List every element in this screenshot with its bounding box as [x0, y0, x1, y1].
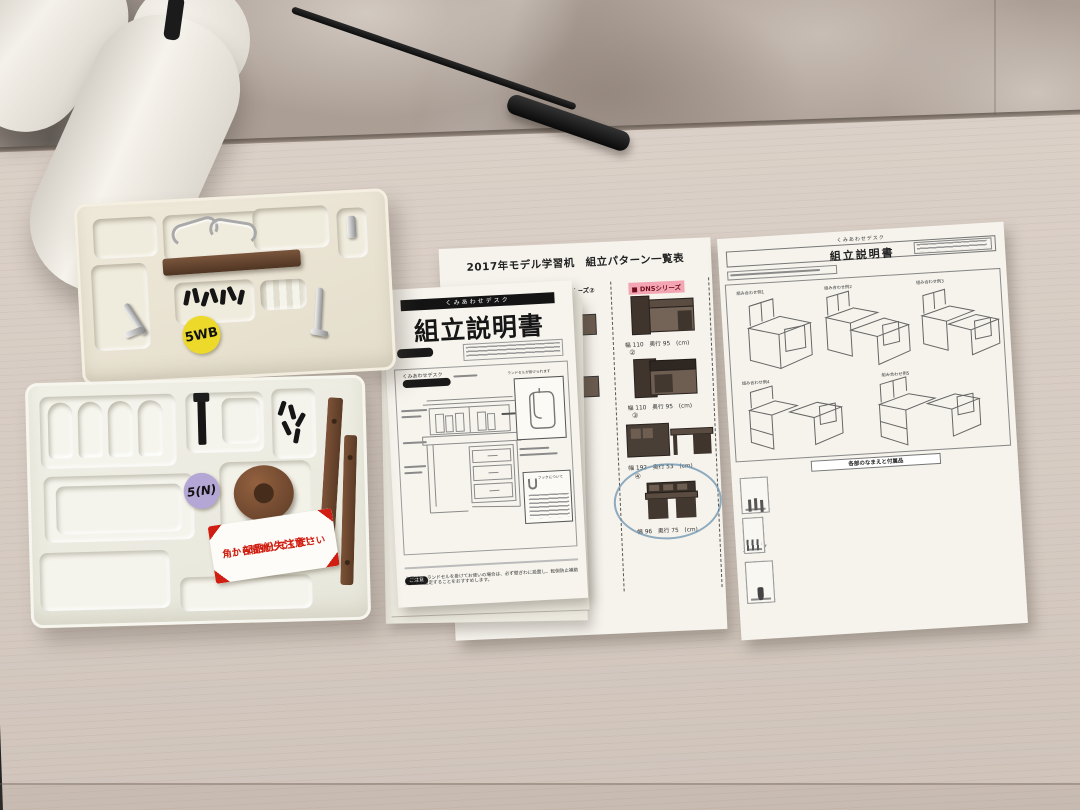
doc-assembly-manual-front: くみあわせデスク 組立説明書 くみあわせデスク: [382, 280, 588, 608]
note-lines: [917, 240, 987, 252]
parts-cell-bolt: [745, 560, 776, 604]
example-label-3: 組み合わせ例3: [916, 278, 944, 286]
column-divider: [610, 282, 625, 592]
wall-seam: [994, 0, 996, 125]
drawing-frame: ランドセルが掛けられます フックについて: [394, 361, 577, 556]
tray-compartment-ribbed: [260, 278, 308, 310]
section-badge: [397, 348, 433, 359]
warning-line-2: ！部品紛失注意！: [231, 532, 316, 559]
dns-num-3: ③: [632, 412, 639, 420]
drawer-handle-right-foot: [310, 328, 329, 337]
tray-compartment: [91, 263, 151, 352]
iso-desk-4: [744, 380, 858, 459]
tray-compartment: [92, 216, 158, 259]
hook-info-box: フックについて: [523, 470, 574, 524]
randoseru-sketch: [523, 387, 559, 433]
desk-front-face: [0, 785, 1080, 810]
molded-arch: [107, 401, 133, 458]
screw-pile: [182, 283, 254, 321]
hook-box-title: フックについて: [538, 474, 563, 481]
tray-compartment: [252, 205, 330, 251]
dns-desk-2: [630, 355, 704, 400]
tray-compartment-ribbed: [221, 397, 260, 444]
parts-cell-screwset: [742, 517, 765, 554]
hook-callout-text: ランドセルが掛けられます: [507, 368, 550, 376]
iso-desk-1: [735, 294, 821, 375]
annotation: [519, 447, 549, 451]
doc-combination-manual: くみあわせデスク 組立説明書 組み合わせ例1 組み合わせ例2 組み合わせ例3 組…: [717, 222, 1028, 641]
model-line: [730, 269, 820, 276]
drawer-handle-right: [314, 287, 323, 333]
photo-scene: 2017年モデル学習机 組立パターン一覧表 ■ YNFシリーズ① ■ YNFシリ…: [0, 0, 1080, 810]
dns-desk-3: [624, 417, 718, 461]
intro-text-lines: [466, 342, 560, 358]
black-screws: [275, 398, 312, 451]
notice-text: 上棚(小)にランドセルを掛けてお使いの場合は、必ず壁ぎわに設置し、転倒防止補助バ…: [405, 568, 581, 588]
brown-bracket: [340, 435, 357, 585]
label-corner: [214, 568, 230, 584]
tray-compartment: [180, 574, 313, 611]
notice-row: ご注意 上棚(小)にランドセルを掛けてお使いの場合は、必ず壁ぎわに設置し、転倒防…: [405, 568, 581, 577]
molded-arch: [47, 402, 73, 459]
bolt-icon: [757, 587, 764, 600]
hardware-tray-bottom: 5(N) 角から開封してください ！部品紛失注意！: [25, 375, 371, 629]
tray-compartment: [56, 483, 183, 534]
dns-caption-2: 幅 110 奥行 95 (cm): [627, 400, 692, 412]
black-bolt: [197, 395, 206, 445]
blue-pen-circle: [612, 461, 723, 542]
tray-compartment-wavy: [39, 550, 170, 611]
dns-caption-1: 幅 110 奥行 95 (cm): [625, 337, 690, 349]
hook-icon: [528, 478, 538, 489]
label-corner: [324, 552, 340, 568]
iso-desk-3: [912, 283, 1005, 366]
molded-arch: [77, 401, 103, 458]
hook-box-text: [529, 493, 570, 519]
iso-desk-5: [874, 370, 998, 453]
rule: [404, 558, 578, 569]
screwset-icon: [746, 539, 762, 551]
plastic-plug-part: [346, 216, 356, 238]
pattern-chart-title: 2017年モデル学習机 組立パターン一覧表: [439, 249, 711, 276]
dns-desk-1: [627, 292, 701, 337]
iso-desk-2: [818, 286, 915, 373]
label-corner: [317, 508, 333, 524]
molded-arch: [137, 400, 163, 457]
screw-icon: [753, 498, 757, 510]
parts-cell-screw: [740, 476, 770, 514]
label-corner: [208, 525, 224, 541]
example-label-1: 組み合わせ例1: [736, 289, 764, 297]
desk-line-drawing: [414, 386, 531, 522]
dns-num-2: ②: [629, 349, 636, 357]
hardware-tray-top: 5WB: [73, 188, 396, 386]
examples-frame: 組み合わせ例1 組み合わせ例2 組み合わせ例3 組み合わせ例4 組み合わせ例5: [725, 268, 1011, 463]
hook-detail-inset: [514, 376, 567, 441]
annotation: [453, 374, 477, 377]
